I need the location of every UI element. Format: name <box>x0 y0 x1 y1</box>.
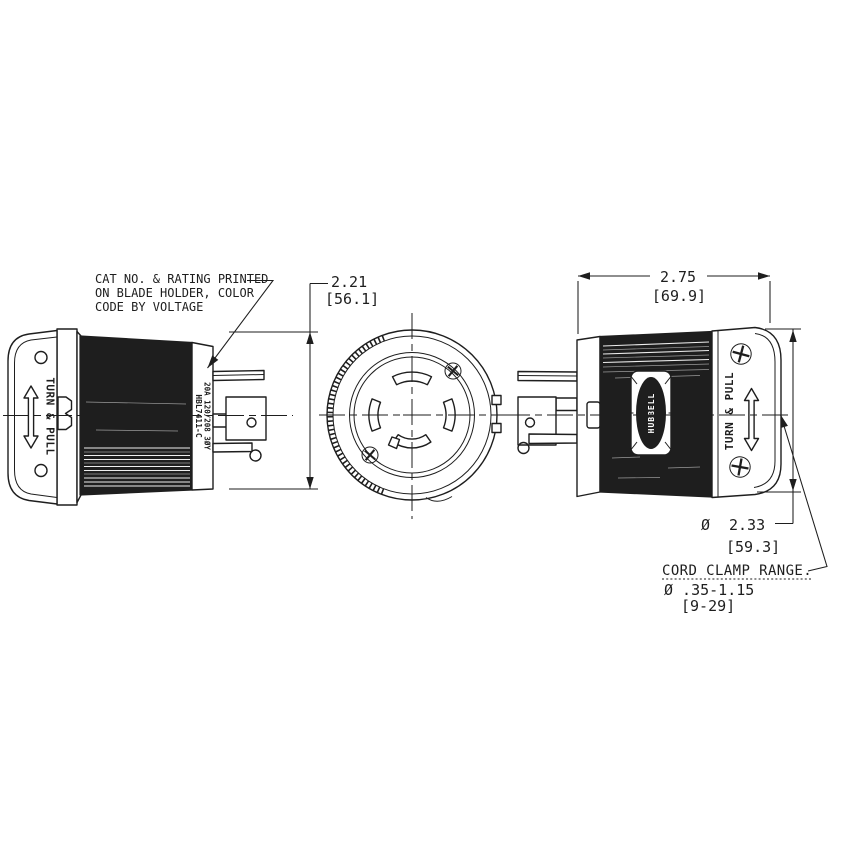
dim-length-mm: [69.9] <box>652 287 706 305</box>
cord-clamp-range-mm: [9-29] <box>681 597 735 615</box>
front-face-view <box>327 330 501 501</box>
rim-boss-top <box>492 396 501 405</box>
dim-body-diameter-mm: [56.1] <box>325 290 379 308</box>
dim-back-diameter-in: 2.33 <box>729 516 765 534</box>
face-screw-bottom-left <box>359 444 382 467</box>
left-side-view: TURN & PULL HBL7411-C 20A 120/208 3ØY <box>8 329 266 505</box>
face-screw-top-right <box>442 360 465 383</box>
dim-overall-length: 2.75 [69.9] <box>578 268 770 334</box>
dim-body-diameter-in: 2.21 <box>331 273 367 291</box>
turn-pull-label: TURN & PULL <box>44 377 57 455</box>
line-blade-right <box>518 372 577 382</box>
rating-label: 20A 120/208 3ØY <box>203 382 212 450</box>
turn-pull-label-right: TURN & PULL <box>723 372 736 450</box>
brand-label: HUBBELL <box>629 371 674 455</box>
dim-length-in: 2.75 <box>660 268 696 286</box>
cord-clamp-leader <box>781 415 828 572</box>
dim-back-diameter-mm: [59.3] <box>726 538 780 556</box>
line-blade <box>213 371 264 381</box>
rim-boss-lower <box>426 497 452 502</box>
ground-key-tab <box>389 437 400 449</box>
cord-clamp-label: CORD CLAMP RANGE. <box>662 563 812 579</box>
technical-drawing-locking-plug: TURN & PULL HBL7411-C 20A 120/208 3ØY <box>0 0 845 845</box>
neutral-blade <box>213 397 266 440</box>
ground-blade <box>213 443 261 461</box>
brand-label-text: HUBBELL <box>647 393 656 434</box>
catalog-number-label: HBL7411-C <box>194 394 203 438</box>
dim-body-diameter: 2.21 [56.1] <box>229 273 379 489</box>
cat-note-line2: ON BLADE HOLDER, COLOR <box>95 286 255 300</box>
rim-boss-bottom <box>492 424 501 433</box>
cat-note-line3: CODE BY VOLTAGE <box>95 300 203 314</box>
cat-note-line1: CAT NO. & RATING PRINTED <box>95 272 268 286</box>
right-side-view: HUBBELL TURN & PULL <box>518 328 781 498</box>
dim-back-diameter-symbol: Ø <box>701 516 710 534</box>
